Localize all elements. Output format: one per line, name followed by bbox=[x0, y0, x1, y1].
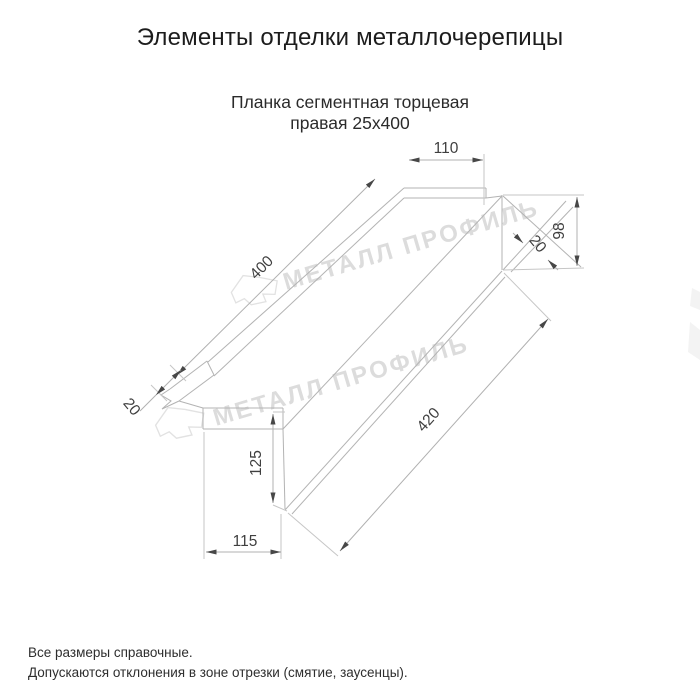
dimension-drawing: МЕТАЛЛ ПРОФИЛЬ МЕТАЛЛ ПРОФИЛЬ bbox=[0, 0, 700, 700]
watermark-upper-text: МЕТАЛЛ ПРОФИЛЬ bbox=[280, 194, 542, 295]
dim-left-height-label: 125 bbox=[248, 450, 265, 476]
technical-drawing-page: Элементы отделки металлочерепицы Планка … bbox=[0, 0, 700, 700]
footer-note-line2: Допускаются отклонения в зоне отрезки (с… bbox=[28, 663, 678, 683]
dim-bottom-length-label: 420 bbox=[414, 404, 444, 435]
dim-top-tab-width-label: 110 bbox=[434, 140, 459, 157]
footer-notes: Все размеры справочные. Допускаются откл… bbox=[28, 643, 678, 683]
watermark-edge-fragment bbox=[688, 288, 700, 360]
part-outline bbox=[161, 188, 581, 514]
dimension-labels: 110 98 20 400 420 20 125 115 bbox=[119, 140, 568, 550]
footer-note-line1: Все размеры справочные. bbox=[28, 643, 678, 663]
dim-line-20-right-a bbox=[513, 233, 523, 243]
dim-line-20-left bbox=[156, 370, 181, 395]
metal-profil-logo-icon bbox=[153, 403, 206, 441]
watermark-upper: МЕТАЛЛ ПРОФИЛЬ bbox=[229, 194, 542, 307]
dim-bottom-width-label: 115 bbox=[233, 533, 258, 550]
dim-end-height-label: 98 bbox=[551, 222, 568, 239]
dim-left-fold-label: 20 bbox=[119, 395, 143, 419]
